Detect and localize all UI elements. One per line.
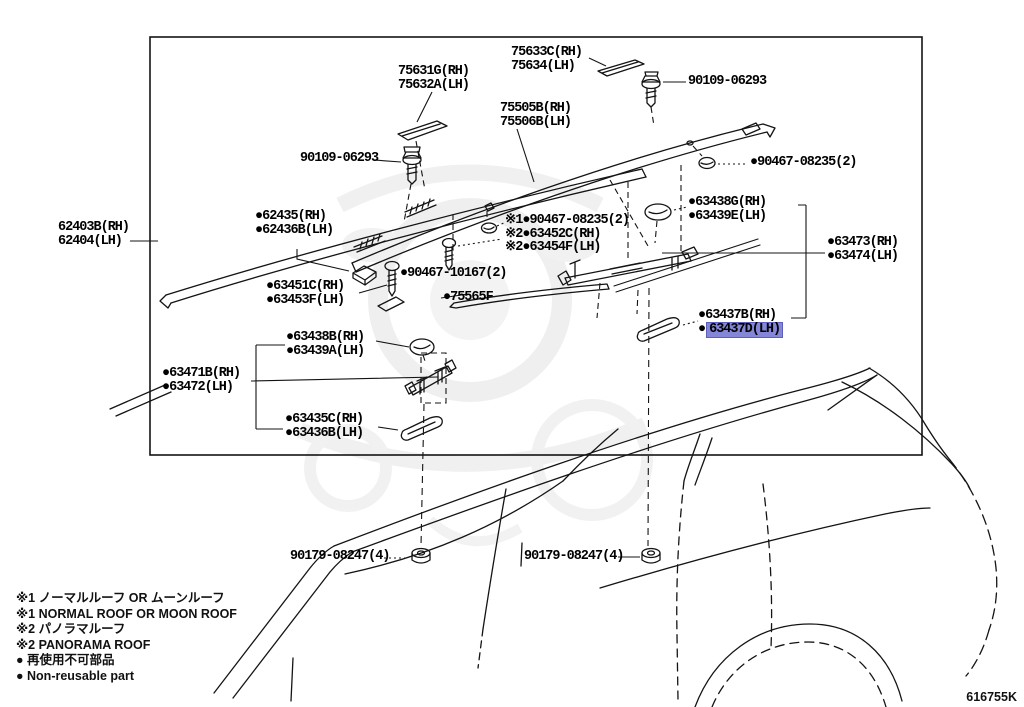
grommet-90467-08235-mid-drawing [482,223,497,233]
part-label-62403b[interactable]: 62403B(RH) 62404(LH) [58,221,129,248]
part-label-90467-08235-right[interactable]: ●90467-08235(2) [750,156,857,170]
part-label-63452c-group[interactable]: ※1●90467-08235(2) ※2●63452C(RH) ※2●63454… [505,214,629,255]
part-label-90109-06293-left[interactable]: 90109-06293 [300,152,378,166]
nut-90179-right-drawing [642,549,660,564]
pad-63435-drawing [401,417,442,441]
part-label-63451c[interactable]: ●63451C(RH) ●63453F(LH) [266,280,344,307]
parts-diagram-page: 75631G(RH) 75632A(LH) 75633C(RH) 75634(L… [0,0,1024,707]
legend-line-jp-3: ● 再使用不可部品 [16,653,237,669]
part-label-63437d-selected[interactable]: ●63437D(LH) [698,322,783,338]
part-label-75633c[interactable]: 75633C(RH) 75634(LH) [511,46,582,73]
part-label-63435c[interactable]: ●63435C(RH) ●63436B(LH) [285,413,363,440]
grommet-90467-08235-right-drawing [699,158,715,169]
part-label-63473[interactable]: ●63473(RH) ●63474(LH) [827,236,898,263]
part-label-75505b[interactable]: 75505B(RH) 75506B(LH) [500,102,571,129]
part-label-75565f[interactable]: ●75565F [443,291,493,305]
part-label-90109-06293-top[interactable]: 90109-06293 [688,75,766,89]
legend-line-en-3: ● Non-reusable part [16,669,237,685]
pad-63437-drawing [637,318,679,342]
part-label-90179-left[interactable]: 90179-08247(4) [290,550,389,564]
legend-notes: ※1 ノーマルルーフ OR ムーンルーフ ※1 NORMAL ROOF OR M… [16,591,237,684]
legend-line-jp-1: ※1 ノーマルルーフ OR ムーンルーフ [16,591,237,607]
oval-clip-right-drawing [645,204,671,220]
speed-lines [614,239,760,292]
diagram-code: 616755K [966,690,1017,704]
part-label-90467-10167[interactable]: ●90467-10167(2) [400,267,507,281]
bolt-90109-right-drawing [642,72,660,107]
legend-line-jp-2: ※2 パノラマルーフ [16,622,237,638]
strip-75633-drawing [598,60,644,76]
non-reusable-bullet: ● [698,323,705,337]
part-label-63438b[interactable]: ●63438B(RH) ●63439A(LH) [286,331,364,358]
legend-line-en-2: ※2 PANORAMA ROOF [16,638,237,654]
part-label-63437b[interactable]: ●63437B(RH) [698,309,776,323]
part-label-75631g[interactable]: 75631G(RH) 75632A(LH) [398,65,469,92]
part-label-62435[interactable]: ●62435(RH) ●62436B(LH) [255,210,333,237]
selected-part-highlight: 63437D(LH) [706,322,783,338]
strip-75631-drawing [398,121,447,140]
legend-line-en-1: ※1 NORMAL ROOF OR MOON ROOF [16,607,237,623]
part-label-63438g[interactable]: ●63438G(RH) ●63439E(LH) [688,196,766,223]
part-label-63471b[interactable]: ●63471B(RH) ●63472(LH) [162,367,240,394]
part-label-90179-right[interactable]: 90179-08247(4) [524,550,623,564]
